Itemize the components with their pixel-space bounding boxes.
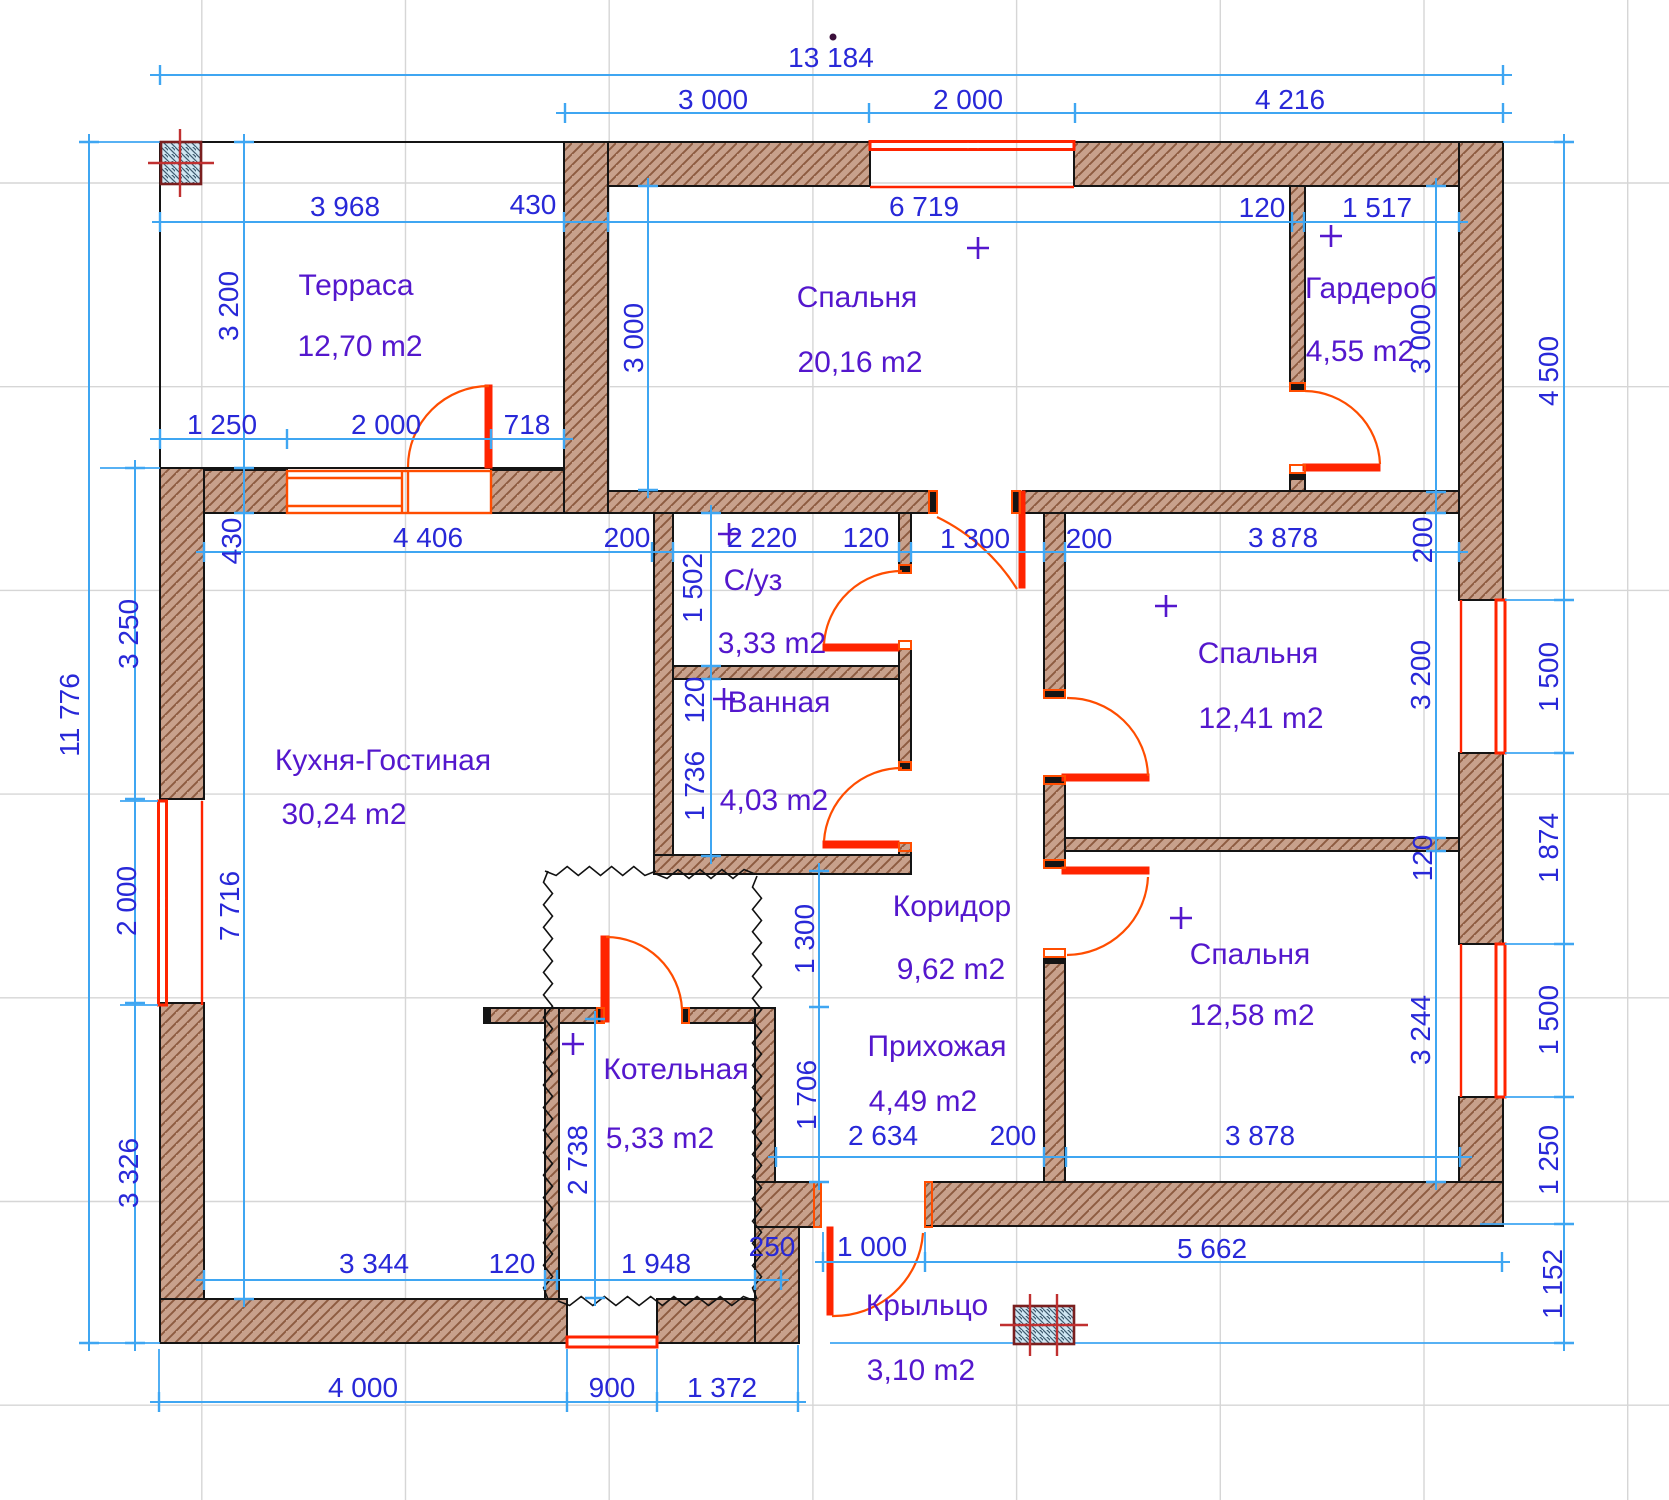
svg-text:2 220: 2 220: [727, 522, 797, 553]
svg-text:7 716: 7 716: [214, 871, 245, 941]
svg-text:4,03 m2: 4,03 m2: [720, 784, 828, 817]
svg-text:5,33 m2: 5,33 m2: [606, 1122, 714, 1155]
svg-text:1 300: 1 300: [940, 523, 1010, 554]
svg-text:3 326: 3 326: [113, 1138, 144, 1208]
svg-text:120: 120: [489, 1248, 536, 1279]
svg-text:1 152: 1 152: [1537, 1249, 1568, 1319]
svg-text:718: 718: [504, 409, 551, 440]
svg-text:9,62 m2: 9,62 m2: [897, 953, 1005, 986]
svg-text:Крыльцо: Крыльцо: [866, 1289, 988, 1322]
svg-text:4 406: 4 406: [393, 522, 463, 553]
svg-text:12,70 m2: 12,70 m2: [297, 330, 422, 363]
svg-text:200: 200: [1066, 523, 1113, 554]
svg-text:20,16 m2: 20,16 m2: [797, 346, 922, 379]
svg-text:1 706: 1 706: [791, 1060, 822, 1130]
svg-text:3,10 m2: 3,10 m2: [867, 1354, 975, 1387]
svg-text:900: 900: [589, 1372, 636, 1403]
svg-text:3 344: 3 344: [339, 1248, 409, 1279]
svg-text:200: 200: [604, 522, 651, 553]
svg-text:1 948: 1 948: [621, 1248, 691, 1279]
svg-text:Коридор: Коридор: [893, 890, 1011, 923]
svg-text:4,55 m2: 4,55 m2: [1306, 335, 1414, 368]
svg-text:13 184: 13 184: [788, 42, 874, 73]
svg-text:Спальня: Спальня: [797, 281, 918, 314]
svg-text:Ванная: Ванная: [728, 686, 831, 719]
svg-text:12,41 m2: 12,41 m2: [1198, 702, 1323, 735]
svg-text:3 878: 3 878: [1225, 1120, 1295, 1151]
svg-text:4 000: 4 000: [328, 1372, 398, 1403]
svg-text:430: 430: [510, 189, 557, 220]
svg-text:Спальня: Спальня: [1198, 637, 1319, 670]
svg-text:2 000: 2 000: [111, 866, 142, 936]
svg-text:1 736: 1 736: [679, 751, 710, 821]
svg-text:Кухня-Гостиная: Кухня-Гостиная: [275, 744, 491, 777]
svg-text:1 250: 1 250: [187, 409, 257, 440]
svg-text:30,24 m2: 30,24 m2: [281, 798, 406, 831]
svg-text:1 372: 1 372: [687, 1372, 757, 1403]
svg-text:200: 200: [990, 1120, 1037, 1151]
svg-text:3,33 m2: 3,33 m2: [718, 627, 826, 660]
svg-text:2 738: 2 738: [562, 1125, 593, 1195]
svg-text:Спальня: Спальня: [1190, 938, 1311, 971]
svg-text:С/уз: С/уз: [724, 564, 783, 597]
svg-text:2 634: 2 634: [848, 1120, 918, 1151]
svg-text:1 517: 1 517: [1342, 192, 1412, 223]
svg-text:6 719: 6 719: [889, 191, 959, 222]
svg-text:5 662: 5 662: [1177, 1233, 1247, 1264]
svg-text:Котельная: Котельная: [603, 1053, 748, 1086]
svg-text:11 776: 11 776: [54, 673, 85, 757]
svg-text:3 200: 3 200: [1405, 640, 1436, 710]
svg-text:4 216: 4 216: [1255, 84, 1325, 115]
svg-text:4,49 m2: 4,49 m2: [869, 1085, 977, 1118]
svg-text:2 000: 2 000: [351, 409, 421, 440]
svg-text:120: 120: [1239, 192, 1286, 223]
svg-text:Гардероб: Гардероб: [1305, 272, 1437, 305]
svg-text:12,58 m2: 12,58 m2: [1189, 999, 1314, 1032]
svg-text:2 000: 2 000: [933, 84, 1003, 115]
svg-text:200: 200: [1407, 517, 1438, 564]
svg-text:3 250: 3 250: [113, 599, 144, 669]
svg-text:3 878: 3 878: [1248, 522, 1318, 553]
svg-text:1 000: 1 000: [837, 1231, 907, 1262]
svg-text:Прихожая: Прихожая: [867, 1030, 1006, 1063]
svg-text:1 874: 1 874: [1533, 813, 1564, 883]
svg-text:3 968: 3 968: [310, 191, 380, 222]
svg-text:120: 120: [679, 677, 710, 724]
svg-text:Терраса: Терраса: [298, 269, 413, 302]
svg-text:3 200: 3 200: [213, 271, 244, 341]
svg-text:1 250: 1 250: [1533, 1125, 1564, 1195]
svg-text:250: 250: [749, 1231, 796, 1262]
svg-text:3 000: 3 000: [678, 84, 748, 115]
svg-text:4 500: 4 500: [1533, 336, 1564, 406]
svg-text:120: 120: [843, 522, 890, 553]
svg-text:1 502: 1 502: [677, 553, 708, 623]
svg-text:3 000: 3 000: [618, 303, 649, 373]
svg-text:1 300: 1 300: [789, 904, 820, 974]
svg-text:3 244: 3 244: [1405, 995, 1436, 1065]
svg-text:1 500: 1 500: [1533, 985, 1564, 1055]
svg-text:1 500: 1 500: [1533, 642, 1564, 712]
svg-text:120: 120: [1407, 835, 1438, 882]
svg-text:430: 430: [216, 518, 247, 565]
